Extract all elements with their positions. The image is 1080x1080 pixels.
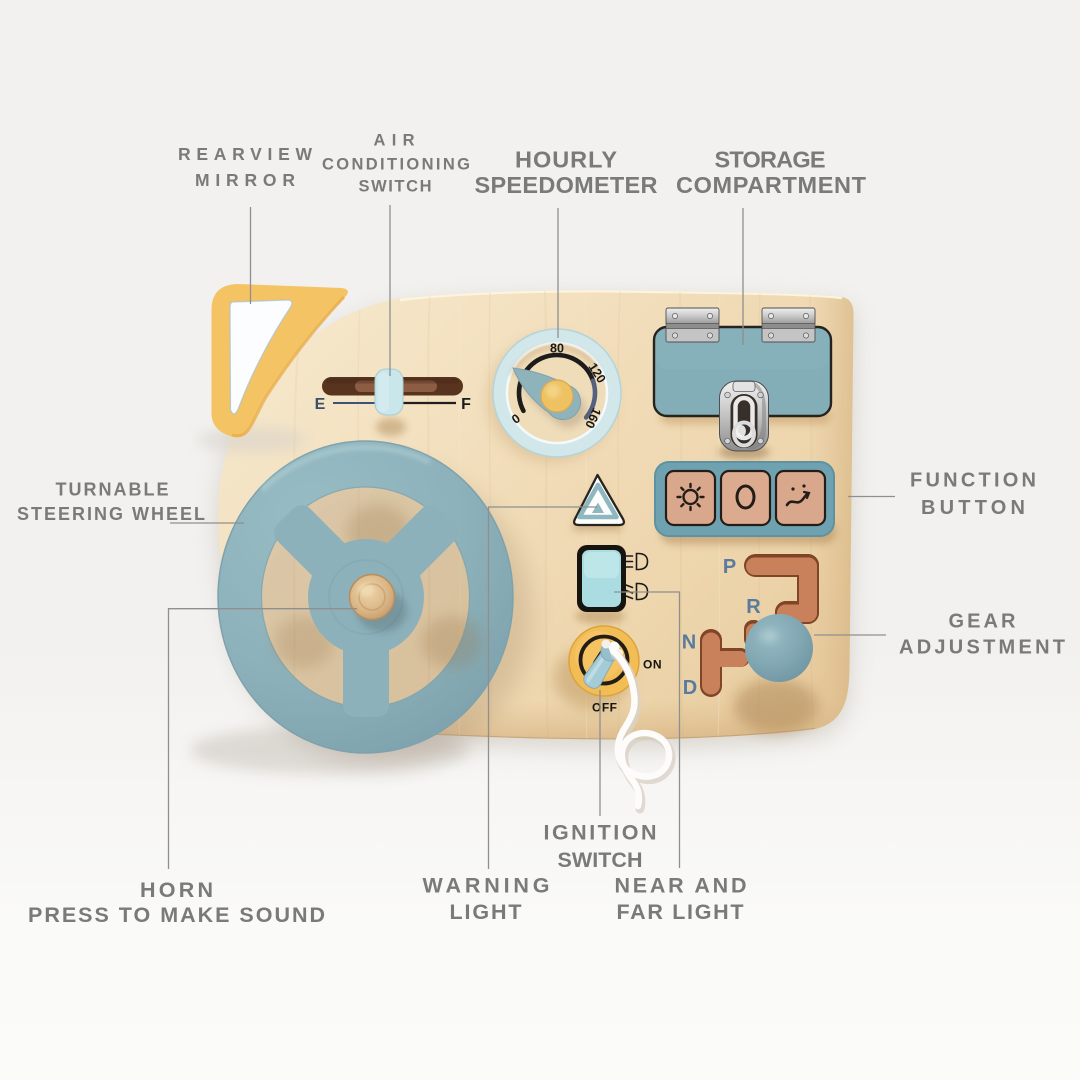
- svg-text:CONDITIONING: CONDITIONING: [322, 156, 470, 174]
- svg-text:SPEEDOMETER: SPEEDOMETER: [475, 172, 658, 198]
- svg-text:SWITCH: SWITCH: [359, 178, 432, 196]
- svg-text:FUNCTION: FUNCTION: [910, 470, 1036, 492]
- svg-text:PRESS TO MAKE SOUND: PRESS TO MAKE SOUND: [28, 903, 325, 927]
- svg-text:OFF: OFF: [592, 701, 618, 715]
- svg-text:N: N: [682, 632, 696, 654]
- svg-text:F: F: [461, 396, 471, 413]
- svg-text:ON: ON: [643, 658, 662, 672]
- svg-text:P: P: [723, 556, 736, 578]
- svg-text:NEAR AND: NEAR AND: [615, 874, 747, 898]
- svg-text:STEERING WHEEL: STEERING WHEEL: [17, 504, 205, 524]
- svg-text:SWITCH: SWITCH: [558, 848, 643, 872]
- svg-text:AIR: AIR: [374, 132, 415, 150]
- svg-text:D: D: [683, 677, 697, 699]
- svg-text:R: R: [746, 596, 761, 618]
- svg-text:COMPARTMENT: COMPARTMENT: [676, 172, 867, 198]
- svg-text:FAR LIGHT: FAR LIGHT: [617, 900, 744, 924]
- svg-text:80: 80: [550, 342, 564, 356]
- svg-text:LIGHT: LIGHT: [450, 900, 522, 924]
- svg-text:STORAGE: STORAGE: [715, 147, 826, 173]
- svg-text:E: E: [315, 396, 326, 413]
- svg-text:HOURLY: HOURLY: [515, 147, 617, 173]
